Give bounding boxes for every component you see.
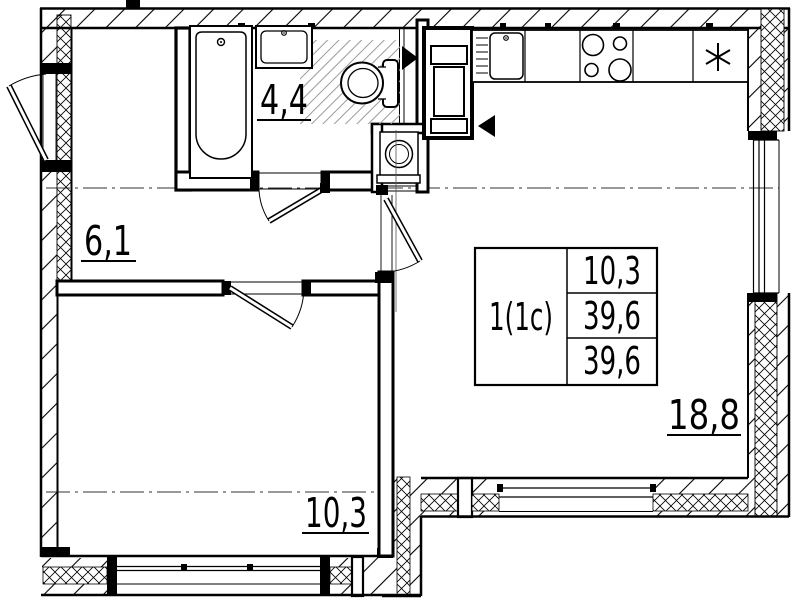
living-door-hinge-block	[376, 185, 388, 195]
floor-plan-canvas: 1(1c) 10,3 39,6 39,6 4,4 6,1 10,3 18,8	[0, 0, 794, 600]
br-seg-b-insulation	[330, 567, 352, 584]
lr-seg-a-insulation	[421, 494, 458, 511]
bathroom-left-wall	[176, 28, 190, 190]
sink-tap-dot	[283, 32, 285, 34]
br-seg-a-insulation	[43, 567, 107, 584]
bathroom-south-wall-right	[322, 172, 378, 190]
entrance-jamb-bottom	[40, 160, 71, 172]
bedroom-area-label: 10,3	[305, 489, 367, 537]
br-window-nub-1	[181, 564, 187, 570]
info-table: 1(1c) 10,3 39,6 39,6	[475, 248, 657, 385]
right-window-jamb-bottom	[748, 293, 777, 302]
living-room-area-label: 18,8	[668, 391, 740, 439]
right-wall-bottom-insulation	[755, 293, 777, 517]
kitchen-sink-tap-dot	[505, 37, 507, 39]
bedroom-door-jamb-left	[223, 281, 231, 295]
vent-duct-3	[431, 119, 467, 133]
total-area-value: 39,6	[583, 339, 641, 383]
vent-duct-1	[431, 46, 467, 64]
left-wall-insulation	[57, 15, 71, 283]
kitchen-counter	[472, 30, 748, 82]
lr-seg-c-insulation	[653, 494, 748, 511]
living-area-value: 10,3	[583, 249, 641, 293]
br-window-jamb-right	[320, 556, 330, 595]
top-wall-hatch	[41, 9, 789, 28]
bedroom-east-wall	[379, 272, 393, 556]
top-wall-joint-tab	[126, 0, 140, 9]
vent-duct-2	[434, 67, 464, 116]
br-window-pier	[352, 557, 363, 596]
lr-window-pier	[458, 478, 472, 517]
washing-machine-base	[377, 175, 420, 183]
bedroom-north-wall-left	[57, 281, 223, 295]
bathtub-drain-dot	[220, 41, 222, 43]
bathroom-area-label: 4,4	[260, 76, 308, 124]
br-wall-seg-c	[363, 558, 393, 595]
bathroom-door-hinge	[320, 183, 330, 193]
left-bottom-corner-block	[40, 547, 70, 556]
hallway-area-label: 6,1	[84, 217, 132, 265]
lr-window-jamb-left	[497, 484, 503, 492]
bathtub-icon	[190, 26, 252, 178]
br-window-nub-2	[247, 564, 253, 570]
entrance-jamb-top	[40, 63, 71, 74]
right-wall-top-insulation	[761, 9, 784, 131]
area-value: 39,6	[583, 294, 641, 338]
unit-type-label: 1(1c)	[489, 295, 553, 339]
lr-seg-b-insulation	[472, 494, 499, 511]
br-window-jamb-left	[107, 556, 117, 595]
bedroom-east-wall-end-block	[375, 272, 393, 283]
entrance-door-opening	[41, 73, 58, 160]
right-window-jamb-top	[748, 131, 777, 140]
floor-plan: 1(1c) 10,3 39,6 39,6 4,4 6,1 10,3 18,8	[0, 0, 794, 600]
step-wall-insulation	[397, 477, 410, 596]
